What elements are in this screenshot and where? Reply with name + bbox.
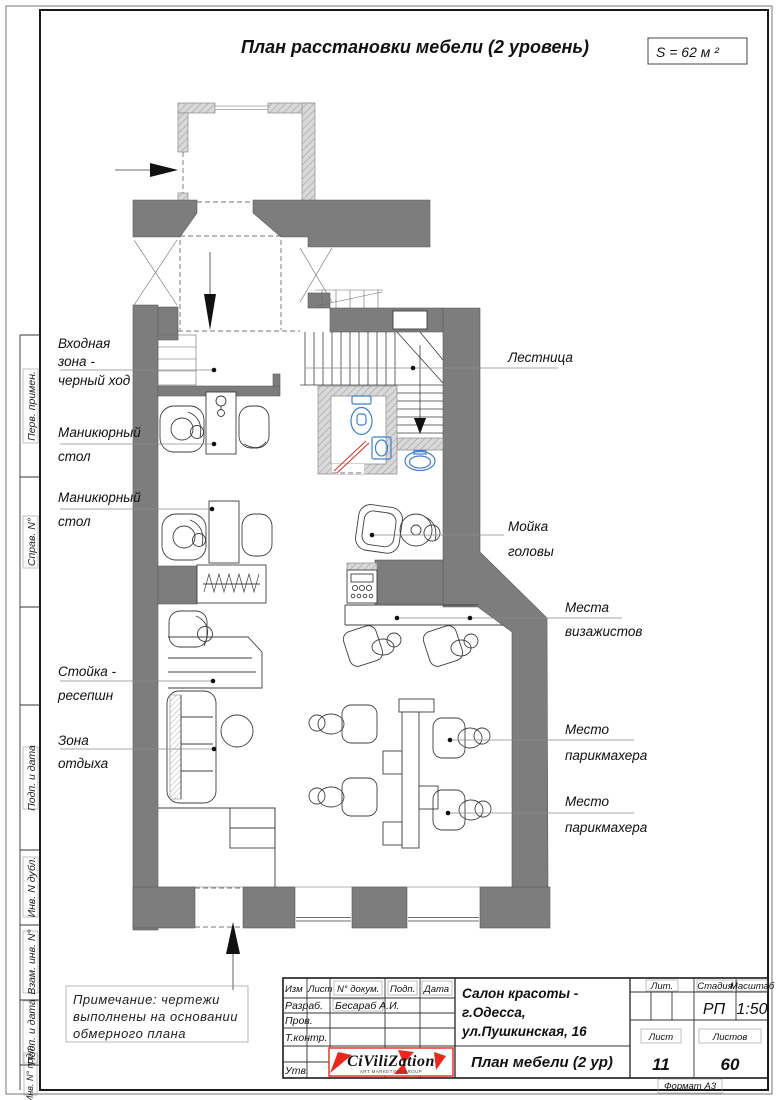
note-box: Примечание: чертежи выполнены на основан…	[66, 986, 248, 1042]
entry-arrow-down	[204, 294, 216, 330]
entry-steps	[158, 335, 196, 385]
svg-text:ресепшн: ресепшн	[57, 688, 114, 703]
label-lounge: Зона	[58, 733, 89, 748]
tb-col-izm: Изм	[285, 984, 303, 995]
floor-plan-svg: Перв. примен. Справ. N° Подп. и дата Инв…	[0, 0, 778, 1100]
svg-text:зона -: зона -	[57, 354, 95, 369]
person	[309, 715, 325, 731]
mirror-island	[383, 699, 438, 848]
margin-cell-vzam-inv: Взам. инв. N°	[26, 929, 38, 994]
margin-cell-perv-primen: Перв. примен.	[26, 371, 38, 441]
tb-prov: Пров.	[285, 1015, 313, 1027]
tb-col-data: Дата	[423, 984, 449, 995]
tb-project-line1: Салон красоты -	[462, 986, 579, 1001]
tb-stage-label: Стадия	[697, 981, 733, 992]
sofa	[167, 691, 216, 803]
plan-walls	[133, 103, 550, 930]
hair-wash-station	[354, 503, 440, 555]
margin-column: Перв. примен. Справ. N° Подп. и дата Инв…	[20, 335, 40, 1100]
svg-text:визажистов: визажистов	[565, 624, 642, 639]
coat-rack	[197, 565, 266, 603]
svg-text:черный ход: черный ход	[58, 373, 131, 388]
label-hair-wash: Мойка	[508, 519, 549, 534]
makeup-stations	[341, 605, 503, 668]
tb-tkontr: Т.контр.	[285, 1032, 327, 1044]
svg-text:стол: стол	[58, 514, 91, 529]
porch-walls	[178, 103, 315, 208]
tb-scale-value: 1:50	[736, 1001, 767, 1018]
svg-text:парикмахера: парикмахера	[565, 748, 648, 763]
toilet	[351, 396, 372, 435]
tb-col-podp: Подп.	[390, 984, 415, 995]
tb-scale-label: Масштаб	[730, 981, 775, 992]
tb-col-docnum: N° докум.	[337, 984, 379, 995]
drawing-sheet: Перв. примен. Справ. N° Подп. и дата Инв…	[0, 0, 778, 1100]
entry-arrow-side	[150, 163, 178, 177]
trolley	[347, 563, 377, 603]
title-block: Изм Лист N° докум. Подп. Дата Разраб. Бе…	[283, 978, 775, 1093]
tb-project-line2: г.Одесса,	[462, 1005, 526, 1020]
person	[309, 788, 325, 804]
svg-text:отдыха: отдыха	[58, 756, 109, 771]
tb-sheet-label: Лист	[648, 1032, 674, 1043]
area-box: S = 62 м ²	[648, 38, 747, 64]
label-stylist-1: Место	[565, 722, 609, 737]
svg-text:выполнены на основании: выполнены на основании	[73, 1009, 238, 1024]
label-entry-zone: Входная	[58, 336, 110, 351]
logo: CiViliZation ART MARKETING GROUP	[329, 1048, 453, 1076]
tb-doc-title: План мебели (2 ур)	[471, 1054, 613, 1071]
stair-landing-hatch	[397, 438, 443, 450]
label-reception: Стойка -	[58, 664, 116, 679]
tb-razrab-value: Бесараб А.И.	[335, 1000, 400, 1012]
sheet-frame	[6, 6, 772, 1094]
logo-text: CiViliZation	[347, 1053, 435, 1070]
label-stylist-2: Место	[565, 794, 609, 809]
logo-subtext: ART MARKETING GROUP	[360, 1069, 422, 1074]
margin-cell-podp-data-1: Подп. и дата	[26, 745, 38, 811]
svg-text:стол: стол	[58, 449, 91, 464]
label-manicure-1: Маникюрный	[58, 425, 141, 440]
stair-direction-arrow	[414, 418, 426, 434]
note-line: Примечание: чертежи	[73, 992, 220, 1007]
tb-stage-value: РП	[703, 1001, 726, 1018]
svg-text:головы: головы	[508, 544, 554, 559]
margin-cell-inv-podl: Инв. N° подл.	[25, 1046, 35, 1100]
tb-col-list: Лист	[307, 984, 333, 995]
label-makeup: Места	[565, 600, 609, 615]
tb-sheets-value: 60	[721, 1055, 740, 1074]
tb-project-line3: ул.Пушкинская, 16	[461, 1024, 587, 1039]
margin-cell-inv-dubl: Инв. N дубл.	[26, 857, 38, 918]
reception-desk	[168, 611, 262, 688]
area-value: S = 62 м ²	[656, 44, 720, 60]
svg-text:обмерного плана: обмерного плана	[73, 1026, 186, 1041]
label-manicure-2: Маникюрный	[58, 490, 141, 505]
label-stairs: Лестница	[507, 350, 573, 365]
person	[198, 627, 213, 642]
tb-sheet-value: 11	[652, 1055, 670, 1074]
margin-cell-sprav: Справ. N°	[26, 518, 38, 566]
bathroom	[318, 386, 397, 474]
page-title: План расстановки мебели (2 уровень)	[241, 37, 589, 57]
corner-cabinet	[158, 808, 275, 887]
svg-text:парикмахера: парикмахера	[565, 820, 648, 835]
format-label: Формат А3	[664, 1081, 717, 1092]
tb-razrab: Разраб.	[285, 1000, 323, 1012]
tb-utv: Утв.	[284, 1065, 309, 1077]
tb-lit-label: Лит.	[650, 981, 673, 992]
side-table	[221, 715, 253, 747]
hall-sink	[405, 451, 435, 471]
tb-sheets-label: Листов	[712, 1032, 748, 1043]
